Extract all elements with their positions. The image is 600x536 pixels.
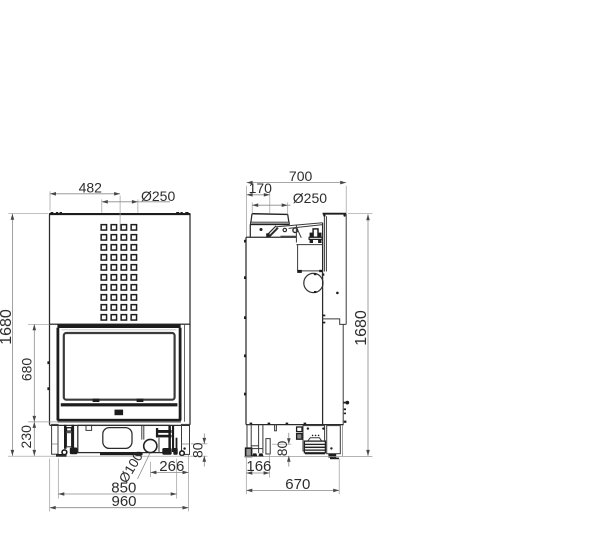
svg-text:166: 166 [246,458,271,475]
svg-text:680: 680 [19,358,35,382]
svg-text:80: 80 [274,441,290,457]
svg-text:1680: 1680 [353,310,370,346]
svg-text:670: 670 [285,476,310,493]
svg-text:170: 170 [249,180,273,196]
svg-text:230: 230 [18,425,34,449]
svg-text:Ø250: Ø250 [141,188,175,204]
svg-text:960: 960 [111,493,136,510]
svg-text:Ø250: Ø250 [293,190,327,206]
svg-text:266: 266 [159,458,184,475]
svg-text:80: 80 [189,442,205,458]
svg-text:482: 482 [79,180,103,196]
svg-text:700: 700 [289,168,313,184]
svg-text:1680: 1680 [0,309,15,345]
